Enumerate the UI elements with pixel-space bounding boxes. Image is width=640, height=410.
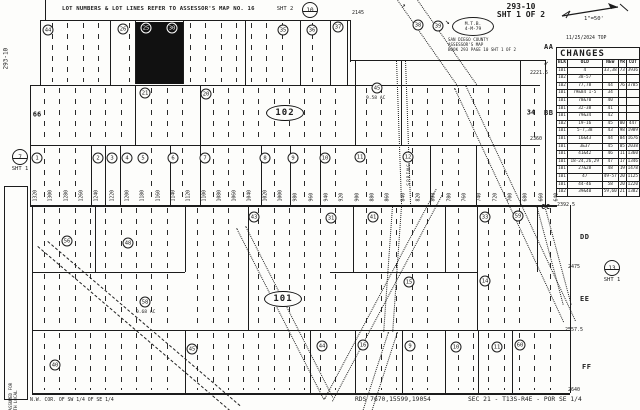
lot-circle: 25 <box>141 23 152 34</box>
lot-circle: 58 <box>140 297 151 308</box>
lot-circle: 56 <box>62 236 73 247</box>
lot-line-dashed <box>304 208 305 327</box>
boundary-line <box>32 393 570 395</box>
lot-circle: 43 <box>249 212 260 223</box>
lot-circle: 10 <box>320 153 331 164</box>
sheet-ref-circle: 10 <box>302 2 318 18</box>
lot-line-dashed <box>182 148 183 202</box>
lot-line-dashed <box>458 148 459 202</box>
distance-tick: 1000 <box>279 180 284 202</box>
lot-line-dashed <box>473 333 474 390</box>
boundary-line <box>330 272 477 273</box>
boundary-line <box>520 60 521 205</box>
lot-circle: 12 <box>403 152 414 163</box>
lot-circle: 35 <box>278 25 289 36</box>
lot-line-dashed <box>98 23 99 82</box>
lot-circle: 30 <box>167 23 178 34</box>
boundary-line <box>512 330 513 393</box>
lot-line-dashed <box>335 208 336 327</box>
boundary-line <box>30 85 540 86</box>
distance-tick: 780 <box>447 180 452 202</box>
grid-letter: AA <box>544 43 553 51</box>
lot-circle: 40 <box>50 360 61 371</box>
lot-line-dashed <box>504 208 505 327</box>
grid-letter: EE <box>580 295 589 303</box>
grid-letter: DD <box>580 233 589 241</box>
lot-line-dashed <box>75 88 76 142</box>
boundary-line <box>40 20 350 21</box>
sheet-ref-label: SHT 2 <box>277 6 294 12</box>
lot-line-dashed <box>44 333 45 390</box>
distance-tick: 1180 <box>141 180 146 202</box>
lot-line-dashed <box>213 148 214 202</box>
distance-tick: 1280 <box>64 180 69 202</box>
lot-line-dashed <box>90 208 91 327</box>
lot-circle: 7 <box>200 153 211 164</box>
lot-line-dashed <box>167 208 168 327</box>
grid-letter: CC <box>541 203 550 211</box>
boundary-line <box>185 330 186 393</box>
lot-line-dashed <box>504 333 505 390</box>
lot-circle: 11 <box>492 342 503 353</box>
lot-circle: 5 <box>138 153 149 164</box>
distance-tick: 640 <box>554 180 559 202</box>
lot-line-dashed <box>243 333 244 390</box>
distance-tick: 720 <box>493 180 498 202</box>
grid-letter: BB <box>544 109 553 117</box>
lot-line-dashed <box>304 148 305 202</box>
lot-line-dashed <box>67 23 68 82</box>
lot-line-dashed <box>289 333 290 390</box>
boundary-line <box>32 330 570 331</box>
sheet-ref-label: SHT 1 <box>604 277 621 283</box>
lot-line-dashed <box>396 333 397 390</box>
lot-line-dashed <box>381 148 382 202</box>
distance-tick: 900 <box>355 180 360 202</box>
boundary-line <box>95 205 96 272</box>
distance-tick: 920 <box>340 180 345 202</box>
boundary-line <box>350 20 351 62</box>
distance-tick: 1080 <box>217 180 222 202</box>
lot-circle: 14 <box>480 276 491 287</box>
lot-line-dashed <box>90 333 91 390</box>
lot-circle: 11 <box>355 152 366 163</box>
boundary-line <box>91 145 92 205</box>
lot-line-dashed <box>75 333 76 390</box>
boundary-line <box>310 330 311 393</box>
lot-line-dashed <box>335 333 336 390</box>
lot-circle: 10 <box>451 342 462 353</box>
distance-tick: 1140 <box>171 180 176 202</box>
boundary-line <box>185 205 186 272</box>
lot-line-dashed <box>151 148 152 202</box>
lot-line-dashed <box>335 148 336 202</box>
lot-line-dashed <box>75 208 76 327</box>
lot-circle: 33 <box>480 212 491 223</box>
lot-line-dashed <box>442 148 443 202</box>
distance-tick: 1220 <box>110 180 115 202</box>
boundary-line <box>401 60 402 145</box>
sheet-ref-circle: 7 <box>12 149 28 165</box>
lot-line-dashed <box>121 208 122 327</box>
lot-line-dashed <box>534 148 535 202</box>
distance-tick: 820 <box>417 180 422 202</box>
lot-circle: 8 <box>260 153 271 164</box>
boundary-line <box>183 20 184 84</box>
lot-circle: 16 <box>358 340 369 351</box>
lot-line-dashed <box>258 208 259 327</box>
lot-circle: 45 <box>187 344 198 355</box>
lot-circle: 45 <box>372 83 383 94</box>
lot-line-dashed <box>129 23 130 82</box>
lot-circle: 26 <box>118 24 129 35</box>
lot-line-dashed <box>534 333 535 390</box>
lot-line-dashed <box>213 208 214 327</box>
distance-tick: 1260 <box>79 180 84 202</box>
lot-line-dashed <box>274 148 275 202</box>
distance-tick: 740 <box>478 180 483 202</box>
lot-line-dashed <box>167 88 168 142</box>
boundary-line <box>135 20 136 84</box>
distance-tick: 1040 <box>248 180 253 202</box>
lot-line-dashed <box>304 88 305 142</box>
boundary-line <box>30 85 31 205</box>
lot-line-dashed <box>105 88 106 142</box>
lot-line-dashed <box>258 333 259 390</box>
lot-circle: 21 <box>140 88 151 99</box>
lot-line-dashed <box>274 333 275 390</box>
distance-tick: 860 <box>386 180 391 202</box>
lot-line-dashed <box>90 88 91 142</box>
sheet-ref-circle: 13 <box>604 260 620 276</box>
boundary-line <box>135 85 136 145</box>
lot-line-dashed <box>236 23 237 82</box>
lot-line-dashed <box>335 88 336 142</box>
lot-line-dashed <box>136 333 137 390</box>
lot-line-dashed <box>228 333 229 390</box>
boundary-line <box>545 60 546 207</box>
lot-line-dashed <box>473 88 474 142</box>
lot-circle: 66 <box>29 110 45 121</box>
parcel-block-ellipse: 101 <box>264 291 302 307</box>
lot-line-dashed <box>442 88 443 142</box>
lot-circle: 59 <box>513 211 524 222</box>
edge-distance: 2145 <box>352 10 364 16</box>
road-line <box>236 228 324 400</box>
boundary-line <box>445 330 446 393</box>
grid-letter: FF <box>582 363 591 371</box>
boundary-line <box>30 145 540 146</box>
lot-line-dashed <box>504 88 505 142</box>
lot-line-dashed <box>44 208 45 327</box>
boundary-line <box>300 20 301 85</box>
lot-line-dashed <box>550 333 551 390</box>
acreage-note: 9.58 AC <box>366 96 385 101</box>
lot-circle: 9 <box>288 153 299 164</box>
lot-line-dashed <box>59 148 60 202</box>
edge-distance: 2392.5 <box>557 202 575 208</box>
lot-circle: 38 <box>413 20 424 31</box>
lot-line-dashed <box>205 23 206 82</box>
distance-tick: 840 <box>401 180 406 202</box>
lot-line-dashed <box>151 333 152 390</box>
lot-line-dashed <box>151 88 152 142</box>
boundary-line <box>245 20 246 85</box>
lot-circle: 48 <box>123 238 134 249</box>
distance-tick: 1060 <box>233 180 238 202</box>
lot-circle: 1 <box>32 153 43 164</box>
lot-circle: 6 <box>168 153 179 164</box>
boundary-line <box>248 205 249 330</box>
lot-line-dashed <box>427 88 428 142</box>
lot-line-dashed <box>366 208 367 327</box>
distance-tick: 700 <box>508 180 513 202</box>
lot-line-dashed <box>121 88 122 142</box>
distance-tick: 980 <box>294 180 299 202</box>
lot-line-dashed <box>427 333 428 390</box>
distance-tick: 880 <box>371 180 376 202</box>
lot-circle: 37 <box>333 22 344 33</box>
lot-line-dashed <box>412 88 413 142</box>
lot-line-dashed <box>182 88 183 142</box>
road-line <box>47 241 240 406</box>
lot-line-dashed <box>243 148 244 202</box>
acreage-note: 0.68 AC <box>136 310 155 315</box>
distance-tick: 1200 <box>125 180 130 202</box>
lot-circle: 44 <box>43 25 54 36</box>
lot-line-dashed <box>221 23 222 82</box>
lot-circle: 34 <box>523 108 539 119</box>
lot-line-dashed <box>488 148 489 202</box>
lot-line-dashed <box>121 333 122 390</box>
edge-distance: 2557.5 <box>565 327 583 333</box>
boundary-line <box>45 0 46 20</box>
lot-line-dashed <box>274 208 275 327</box>
lot-line-dashed <box>167 333 168 390</box>
parcel-block-ellipse: 102 <box>266 105 304 121</box>
lot-circle: 15 <box>404 277 415 288</box>
boundary-line <box>120 145 121 205</box>
boundary-line <box>402 330 403 393</box>
distance-tick: 1020 <box>263 180 268 202</box>
distance-tick: 1320 <box>34 180 39 202</box>
lot-line-dashed <box>488 333 489 390</box>
lot-line-dashed <box>228 208 229 327</box>
lot-circle: 31 <box>326 213 337 224</box>
lot-line-dashed <box>213 88 214 142</box>
lot-circle: 41 <box>368 212 379 223</box>
boundary-line <box>330 20 331 85</box>
lot-line-dashed <box>190 23 191 82</box>
boundary-line <box>355 60 356 145</box>
lot-circle: 36 <box>307 25 318 36</box>
distance-tick: 940 <box>325 180 330 202</box>
distance-tick: 1120 <box>187 180 192 202</box>
boundary-line <box>477 205 478 330</box>
distance-tick: 1100 <box>202 180 207 202</box>
lot-line-dashed <box>320 208 321 327</box>
boundary-line <box>478 330 479 393</box>
boundary-line <box>445 205 446 272</box>
lot-line-dashed <box>105 208 106 327</box>
distance-tick: 960 <box>309 180 314 202</box>
lot-line-dashed <box>251 23 252 82</box>
lot-line-dashed <box>243 88 244 142</box>
lot-line-dashed <box>197 208 198 327</box>
distance-tick: 660 <box>539 180 544 202</box>
sheet-ref-label: SHT 1 <box>12 166 29 172</box>
boundary-line <box>110 20 111 85</box>
lot-circle: 9 <box>405 341 416 352</box>
road-line <box>37 246 230 410</box>
lot-circle: 39 <box>433 21 444 32</box>
boundary-line <box>353 205 354 272</box>
boundary-line <box>350 60 545 61</box>
distance-tick: 1300 <box>49 180 54 202</box>
distance-tick: 680 <box>524 180 529 202</box>
lot-line-dashed <box>258 88 259 142</box>
distance-tick: 1240 <box>95 180 100 202</box>
edge-distance: 2221.5 <box>530 70 548 76</box>
lot-line-dashed <box>458 208 459 327</box>
annotation-arrow-icon: ↗ <box>401 1 406 10</box>
lot-line-dashed <box>83 23 84 82</box>
assessor-map-page: LOT NUMBERS & LOT LINES REFER TO ASSESSO… <box>0 0 640 410</box>
annotation-arrow-icon: ↙ <box>544 58 549 67</box>
lot-line-dashed <box>266 23 267 82</box>
boundary-line <box>40 20 41 85</box>
distance-tick: 800 <box>432 180 437 202</box>
lot-line-dashed <box>59 208 60 327</box>
lot-line-dashed <box>366 148 367 202</box>
lot-line-dashed <box>228 88 229 142</box>
lot-circle: 20 <box>201 89 212 100</box>
lot-line-dashed <box>289 208 290 327</box>
boundary-line <box>347 20 348 85</box>
lot-line-dashed <box>105 333 106 390</box>
boundary-line <box>105 145 106 205</box>
map-linework-layer: ↗↘↙4426253035363738396621204534123456789… <box>0 0 640 410</box>
lot-line-dashed <box>488 208 489 327</box>
distance-tick: 1160 <box>156 180 161 202</box>
lot-line-dashed <box>320 88 321 142</box>
road-name-label: SPRING <box>407 163 412 186</box>
road-line <box>383 206 393 332</box>
boundary-line <box>32 272 185 273</box>
lot-line-dashed <box>59 88 60 142</box>
lot-line-dashed <box>228 148 229 202</box>
lot-circle: 4 <box>122 153 133 164</box>
lot-line-dashed <box>44 148 45 202</box>
lot-circle: 60 <box>515 340 526 351</box>
edge-distance: 2640 <box>568 387 580 393</box>
lot-circle: 44 <box>317 341 328 352</box>
lot-circle: 3 <box>107 153 118 164</box>
lot-line-dashed <box>427 208 428 327</box>
edge-distance: 2475 <box>568 264 580 270</box>
annotation-arrow-icon: ↘ <box>445 17 450 26</box>
road-line <box>332 195 442 401</box>
edge-distance: 2360 <box>530 136 542 142</box>
boundary-line <box>32 205 33 393</box>
lot-circle: 2 <box>93 153 104 164</box>
lot-line-dashed <box>412 208 413 327</box>
distance-tick: 760 <box>462 180 467 202</box>
lot-line-dashed <box>75 148 76 202</box>
